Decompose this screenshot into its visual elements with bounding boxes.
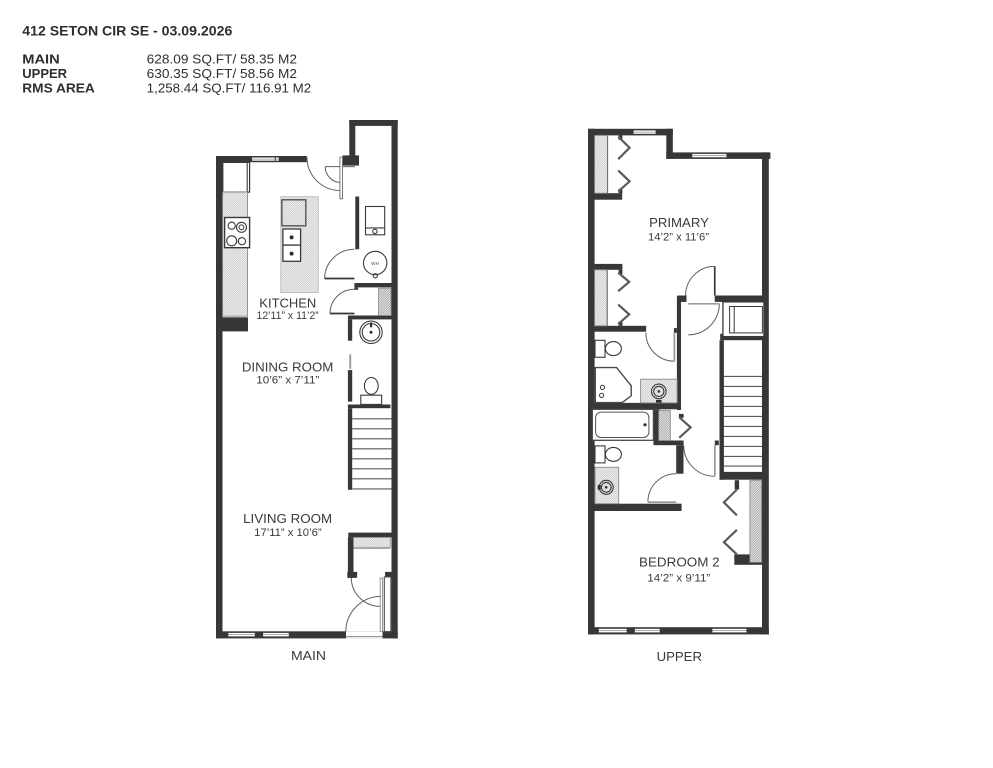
svg-text:630.35 SQ.FT/ 58.56 M2: 630.35 SQ.FT/ 58.56 M2 (147, 66, 297, 81)
svg-text:412 SETON CIR SE - 03.09.2026: 412 SETON CIR SE - 03.09.2026 (22, 24, 233, 39)
svg-text:LIVING ROOM: LIVING ROOM (243, 511, 332, 526)
svg-text:1,258.44 SQ.FT/ 116.91 M2: 1,258.44 SQ.FT/ 116.91 M2 (147, 81, 312, 96)
svg-text:UPPER: UPPER (657, 649, 702, 664)
svg-text:MAIN: MAIN (22, 51, 59, 66)
svg-text:10’6” x 7’11”: 10’6” x 7’11” (256, 375, 319, 387)
svg-text:DINING ROOM: DINING ROOM (242, 360, 334, 375)
svg-text:WH: WH (371, 261, 379, 266)
svg-text:628.09 SQ.FT/ 58.35 M2: 628.09 SQ.FT/ 58.35 M2 (147, 51, 297, 66)
svg-text:MAIN: MAIN (291, 648, 326, 663)
svg-text:17’11” x 10’6”: 17’11” x 10’6” (254, 527, 322, 539)
svg-text:UPPER: UPPER (22, 66, 67, 81)
svg-text:14’2” x 9’11”: 14’2” x 9’11” (647, 573, 710, 585)
svg-text:PRIMARY: PRIMARY (649, 215, 709, 230)
svg-text:RMS AREA: RMS AREA (22, 81, 95, 96)
svg-text:12’11” x 11’2”: 12’11” x 11’2” (257, 310, 320, 322)
svg-text:BEDROOM 2: BEDROOM 2 (639, 554, 720, 569)
svg-text:KITCHEN: KITCHEN (259, 295, 316, 310)
svg-text:14’2” x 11’6”: 14’2” x 11’6” (648, 231, 709, 243)
